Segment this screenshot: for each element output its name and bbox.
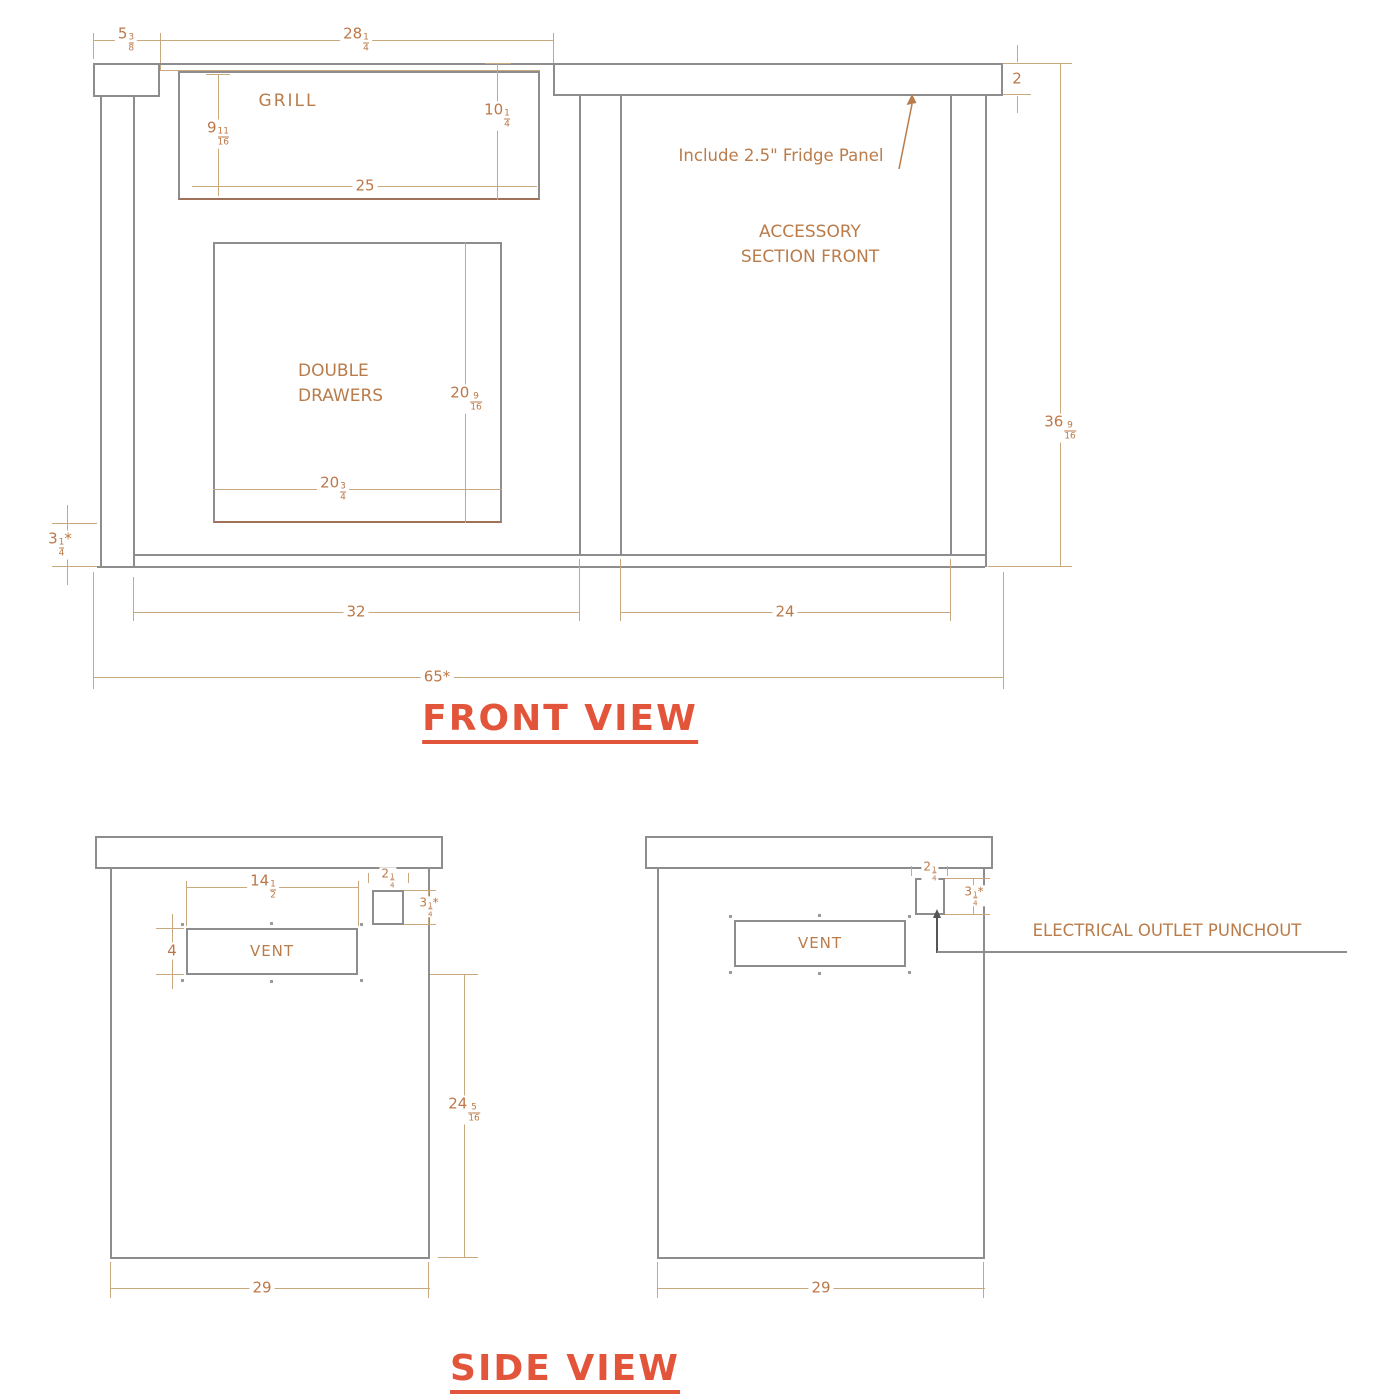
tick (945, 914, 990, 915)
counter-slab (95, 836, 443, 869)
dim-lower-height: 24516 (445, 1096, 483, 1125)
vent-tick (908, 915, 911, 918)
section-divider-left (579, 94, 581, 555)
dim-grill-section-width: 32 (343, 604, 368, 621)
dim-punchout-height: 314* (962, 885, 985, 906)
dim-line (93, 677, 1003, 678)
ext-line (983, 1262, 984, 1298)
double-drawers-label-2: DRAWERS (298, 386, 383, 406)
dim-grill-depth-right: 1014 (481, 102, 513, 131)
tick (408, 873, 409, 883)
accessory-right-edge (950, 94, 952, 555)
dim-grill-bottom-width: 25 (352, 178, 377, 195)
leader-arrow-line (936, 917, 938, 953)
vent-tick (729, 915, 732, 918)
counter-corner-block (93, 63, 160, 97)
double-drawers-box (213, 242, 502, 523)
vent-tick (181, 923, 184, 926)
dim-punchout-height: 314* (417, 896, 440, 917)
leader-line (937, 951, 1347, 953)
dim-counter-thickness: 2 (1009, 71, 1025, 88)
tick (1003, 94, 1031, 95)
ext-line (1017, 96, 1018, 113)
dim-line (465, 242, 466, 523)
cabinet-left-edge (657, 869, 659, 1258)
bottom-outer-line (97, 566, 985, 568)
dim-line (93, 40, 553, 41)
tick (156, 974, 184, 975)
ext-line (1003, 63, 1072, 64)
dim-drawers-height: 20916 (447, 385, 485, 414)
dim-base-height: 314* (45, 531, 75, 560)
drawing-canvas: 538 2814 GRILL DOUBLE DRAWERS 91116 101 (0, 0, 1400, 1400)
ext-line (553, 33, 554, 64)
dim-line (1060, 63, 1061, 567)
dim-vent-width: 1412 (247, 873, 279, 902)
ext-line (1003, 572, 1004, 689)
section-divider-right (620, 94, 622, 555)
ext-line (110, 1262, 111, 1298)
ext-line (428, 1262, 429, 1298)
cabinet-bottom-line (110, 1257, 430, 1259)
tick (911, 866, 912, 876)
ext-line (950, 559, 951, 621)
vent-tick (270, 922, 273, 925)
dim-overall-height: 36916 (1041, 414, 1079, 443)
bottom-inner-line (133, 554, 985, 556)
double-drawers-label-1: DOUBLE (298, 361, 369, 381)
dim-line (213, 489, 502, 490)
dim-counter-overhang: 538 (115, 26, 137, 55)
vent-tick (181, 979, 184, 982)
vent-label: VENT (798, 934, 842, 952)
dim-vent-height: 4 (164, 943, 180, 960)
grill-label: GRILL (259, 91, 318, 111)
vent-tick (729, 971, 732, 974)
vent-tick (360, 979, 363, 982)
dim-drawers-width: 2034 (317, 475, 349, 504)
cabinet-right-edge (428, 869, 430, 1258)
tick (485, 63, 511, 64)
vent-tick (908, 971, 911, 974)
cabinet-bottom-line (657, 1257, 985, 1259)
dim-punchout-width: 214 (921, 860, 938, 881)
fridge-panel-note: Include 2.5" Fridge Panel (679, 146, 884, 166)
cabinet-left-edge (110, 869, 112, 1258)
vent-tick (818, 972, 821, 975)
right-stile (985, 94, 987, 567)
tick (368, 873, 369, 883)
left-stile-outer (100, 97, 102, 567)
ext-line (93, 33, 94, 59)
vent-label: VENT (250, 942, 294, 960)
ext-line (358, 881, 359, 926)
counter-slab (645, 836, 993, 869)
ext-line (657, 1262, 658, 1298)
tick (430, 974, 478, 975)
outlet-punchout (372, 890, 404, 925)
accessory-label-1: ACCESSORY (759, 222, 861, 242)
ext-line (579, 559, 580, 621)
vent-tick (818, 914, 821, 917)
dim-grill-depth-left: 91116 (204, 120, 232, 149)
dim-depth: 29 (249, 1280, 274, 1297)
counter-right-edge (1001, 63, 1003, 96)
dim-accessory-section-width: 24 (772, 604, 797, 621)
tick (945, 878, 990, 879)
side-view-title: SIDE VIEW (450, 1348, 680, 1394)
ext-line (1017, 45, 1018, 62)
vent-tick (270, 980, 273, 983)
punchout-note: ELECTRICAL OUTLET PUNCHOUT (1033, 921, 1302, 941)
dim-grill-cutout-width: 2814 (340, 26, 372, 55)
front-view-title: FRONT VIEW (422, 698, 698, 744)
vent-tick (360, 923, 363, 926)
accessory-label-2: SECTION FRONT (741, 247, 879, 267)
counter-step-line (553, 63, 555, 96)
dim-line (497, 64, 498, 200)
dim-overall-width: 65* (421, 669, 454, 686)
cabinet-right-edge (983, 869, 985, 1258)
tick (404, 924, 436, 925)
tick (52, 523, 97, 524)
tick (947, 866, 948, 876)
dim-depth: 29 (808, 1280, 833, 1297)
tick (438, 1257, 478, 1258)
tick (404, 890, 436, 891)
countertop-top-line (93, 63, 1003, 65)
left-stile-inner (133, 97, 135, 567)
tick (52, 566, 97, 567)
ext-line (93, 572, 94, 689)
ext-line (133, 577, 134, 621)
fridge-panel-arrow (893, 93, 921, 173)
dim-punchout-width: 214 (379, 867, 396, 888)
tick (156, 928, 184, 929)
